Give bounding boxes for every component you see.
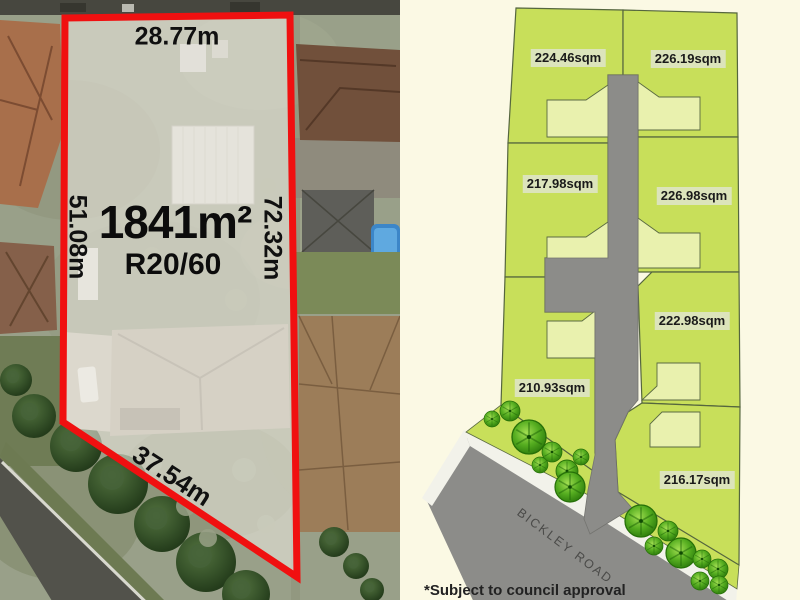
lot-area-label: 226.98sqm — [657, 187, 732, 205]
tree-icon — [484, 411, 500, 427]
lot-area-label: 210.93sqm — [515, 379, 590, 397]
land-area-label: 1841m² — [99, 195, 252, 249]
tree-icon — [573, 449, 589, 465]
lot-area-label: 216.17sqm — [660, 471, 735, 489]
site-plan — [400, 0, 800, 600]
dimension-top: 28.77m — [135, 23, 220, 52]
tree-icon — [710, 576, 728, 594]
tree-icon — [658, 521, 678, 541]
zoning-label: R20/60 — [125, 248, 222, 282]
tree-icon — [625, 505, 657, 537]
disclaimer-label: *Subject to council approval — [424, 582, 626, 599]
lot-area-label: 226.19sqm — [651, 50, 726, 68]
lot-area-label: 217.98sqm — [523, 175, 598, 193]
tree-icon — [500, 401, 520, 421]
tree-icon — [555, 472, 585, 502]
listing-graphic: 28.77m 51.08m 72.32m 37.54m 1841m² R20/6… — [0, 0, 800, 600]
neighbour-house-roof — [0, 242, 57, 334]
site-plan-panel: 224.46sqm 226.19sqm 217.98sqm 226.98sqm … — [400, 0, 800, 600]
tree-icon — [666, 538, 696, 568]
lot-area-label: 224.46sqm — [531, 49, 606, 67]
tree-icon — [645, 537, 663, 555]
aerial-photo-panel: 28.77m 51.08m 72.32m 37.54m 1841m² R20/6… — [0, 0, 400, 600]
tree-icon — [512, 420, 546, 454]
neighbour-block-right — [291, 15, 400, 600]
lot-area-label: 222.98sqm — [655, 312, 730, 330]
tree-icon — [532, 457, 548, 473]
dimension-left: 51.08m — [63, 195, 92, 280]
tree-icon — [691, 572, 709, 590]
dimension-right: 72.32m — [258, 196, 287, 281]
